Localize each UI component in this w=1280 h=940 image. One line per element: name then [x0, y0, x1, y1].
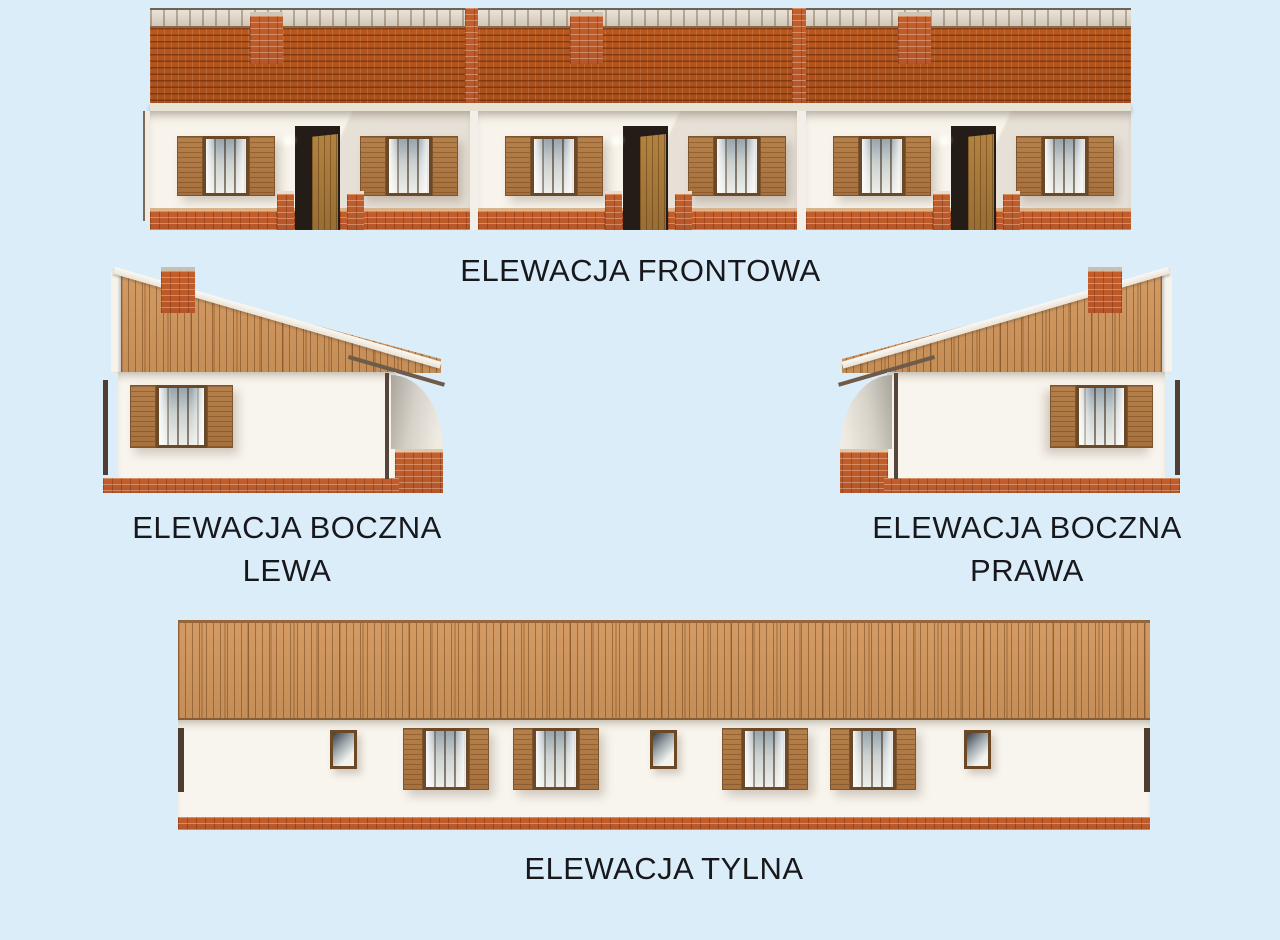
- porch-lamp: [613, 137, 620, 144]
- window-frame: [423, 728, 469, 790]
- downspout: [1175, 380, 1180, 475]
- caption-line: PRAWA: [843, 549, 1211, 592]
- door-leaf: [968, 134, 994, 230]
- window-shutter: [513, 728, 533, 790]
- window-shutter: [1050, 385, 1076, 448]
- porch-lamp: [941, 137, 948, 144]
- right-side-elevation-drawing: [840, 265, 1180, 495]
- brick-pillar: [605, 191, 622, 230]
- downspout: [178, 728, 184, 792]
- window-shutter: [688, 136, 714, 196]
- chimney: [250, 12, 283, 64]
- elevation-sheet: ELEWACJA FRONTOWA ELEWACJA BOCZNA LEWA: [0, 0, 1280, 940]
- window-shutter: [360, 136, 386, 196]
- window-shutter: [432, 136, 458, 196]
- downspout: [103, 380, 108, 475]
- caption-line: ELEWACJA BOCZNA: [843, 506, 1211, 549]
- door-leaf: [312, 134, 338, 230]
- window-frame: [850, 728, 896, 790]
- porch-railing: [150, 208, 295, 230]
- window-shutter: [469, 728, 489, 790]
- left-side-elevation-drawing: [103, 265, 443, 495]
- brick-base: [884, 478, 1180, 493]
- side-window: [130, 385, 233, 448]
- caption-rear-elevation: ELEWACJA TYLNA: [178, 847, 1150, 890]
- brick-base: [103, 478, 399, 493]
- window-shutter: [177, 136, 203, 196]
- window-shutter: [830, 728, 850, 790]
- roof-eave: [150, 103, 1131, 111]
- roof-tiles: [150, 28, 1131, 103]
- chimney: [570, 12, 603, 64]
- wood-siding-band: [178, 620, 1150, 720]
- front-window-left: [833, 136, 931, 196]
- chimney: [1088, 267, 1122, 313]
- brick-pillar: [277, 191, 294, 230]
- brick-pillar: [933, 191, 950, 230]
- front-window-right: [1016, 136, 1114, 196]
- window-shutter: [1016, 136, 1042, 196]
- front-house-unit: [478, 111, 797, 230]
- window-shutter: [722, 728, 742, 790]
- window-shutter: [905, 136, 931, 196]
- side-window: [1050, 385, 1153, 448]
- rear-small-window: [964, 730, 991, 769]
- unit-separator-post: [797, 111, 806, 230]
- entrance-door: [951, 126, 996, 230]
- porch-lamp: [285, 137, 292, 144]
- caption-line: ELEWACJA BOCZNA: [103, 506, 471, 549]
- roof-firewall-divider: [465, 8, 478, 103]
- front-window-right: [688, 136, 786, 196]
- window-frame: [742, 728, 788, 790]
- window-frame: [1076, 385, 1127, 448]
- chimney: [161, 267, 195, 313]
- window-shutter: [207, 385, 233, 448]
- front-end-post: [143, 111, 150, 221]
- window-frame: [859, 136, 905, 196]
- downspout: [385, 373, 389, 479]
- chimney: [898, 12, 931, 64]
- window-shutter: [896, 728, 916, 790]
- rear-window: [830, 728, 916, 790]
- window-shutter: [1088, 136, 1114, 196]
- front-window-left: [177, 136, 275, 196]
- window-shutter: [1127, 385, 1153, 448]
- rear-small-window: [330, 730, 357, 769]
- window-frame: [531, 136, 577, 196]
- porch-railing: [478, 208, 623, 230]
- window-frame: [714, 136, 760, 196]
- brick-base: [178, 817, 1150, 830]
- front-elevation-drawing: [150, 8, 1131, 230]
- downspout: [894, 373, 898, 479]
- front-house-unit: [150, 111, 470, 230]
- rear-window: [722, 728, 808, 790]
- window-frame: [386, 136, 432, 196]
- caption-right-side-elevation: ELEWACJA BOCZNA PRAWA: [843, 506, 1211, 592]
- rear-elevation-drawing: [178, 620, 1150, 830]
- rear-window: [513, 728, 599, 790]
- rear-small-window: [650, 730, 677, 769]
- gable-edge-board: [111, 269, 121, 373]
- front-window-right: [360, 136, 458, 196]
- front-house-unit: [806, 111, 1131, 230]
- roof-firewall-divider: [792, 8, 806, 103]
- window-frame: [533, 728, 579, 790]
- porch-arch: [840, 375, 892, 449]
- front-wall-row: [150, 111, 1131, 230]
- window-shutter: [577, 136, 603, 196]
- brick-pillar: [347, 191, 364, 230]
- downspout: [1144, 728, 1150, 792]
- window-frame: [203, 136, 249, 196]
- brick-pillar: [1003, 191, 1020, 230]
- brick-pillar: [395, 449, 443, 493]
- window-frame: [156, 385, 207, 448]
- window-shutter: [760, 136, 786, 196]
- window-shutter: [249, 136, 275, 196]
- porch-railing: [806, 208, 951, 230]
- window-shutter: [579, 728, 599, 790]
- roof-ridge-cap: [150, 8, 1131, 28]
- rear-window: [403, 728, 489, 790]
- entrance-door: [623, 126, 668, 230]
- door-leaf: [640, 134, 666, 230]
- entrance-door: [295, 126, 340, 230]
- brick-pillar: [675, 191, 692, 230]
- unit-separator-post: [470, 111, 478, 230]
- caption-line: LEWA: [103, 549, 471, 592]
- window-shutter: [403, 728, 423, 790]
- window-shutter: [130, 385, 156, 448]
- brick-pillar: [840, 449, 888, 493]
- gable-edge-board: [1162, 269, 1172, 373]
- window-shutter: [833, 136, 859, 196]
- window-frame: [1042, 136, 1088, 196]
- porch-arch: [391, 375, 443, 449]
- window-shutter: [505, 136, 531, 196]
- window-shutter: [788, 728, 808, 790]
- front-window-left: [505, 136, 603, 196]
- caption-left-side-elevation: ELEWACJA BOCZNA LEWA: [103, 506, 471, 592]
